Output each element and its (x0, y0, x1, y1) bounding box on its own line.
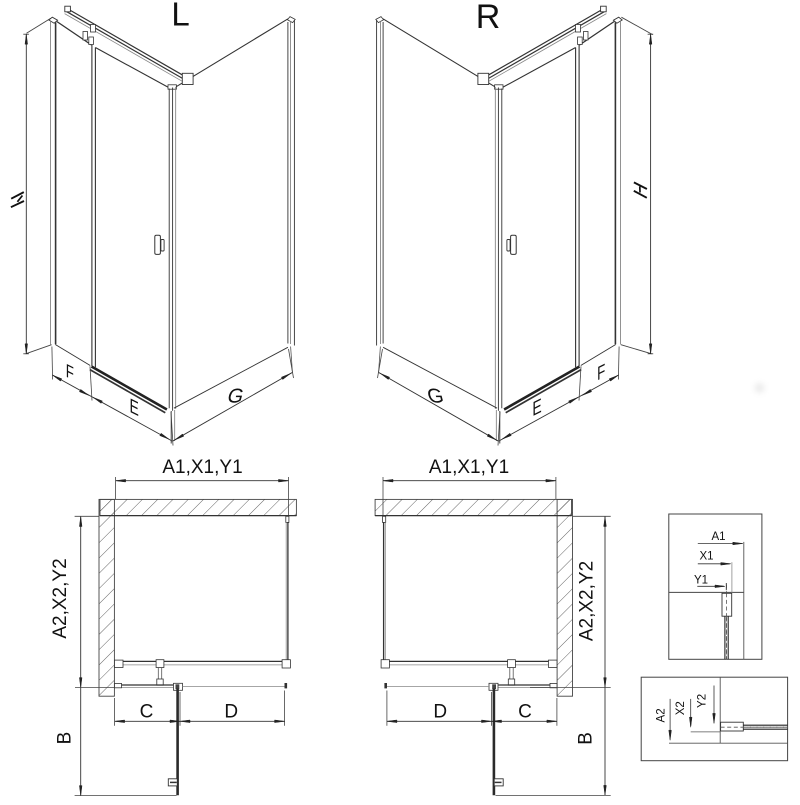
svg-text:Y1: Y1 (694, 575, 708, 587)
svg-text:C: C (518, 702, 532, 723)
svg-text:L: L (171, 0, 189, 33)
svg-text:A2,X2,Y2: A2,X2,Y2 (576, 561, 597, 641)
svg-text:R: R (476, 0, 501, 36)
svg-text:A2: A2 (655, 708, 667, 722)
svg-text:D: D (224, 702, 238, 723)
svg-text:B: B (576, 732, 597, 745)
svg-text:A1: A1 (711, 531, 725, 543)
svg-text:D: D (433, 702, 447, 723)
svg-text:F: F (66, 360, 74, 385)
svg-text:A1,X1,Y1: A1,X1,Y1 (429, 457, 509, 478)
svg-text:C: C (140, 702, 154, 723)
svg-text:X2: X2 (675, 701, 687, 715)
svg-text:A1,X1,Y1: A1,X1,Y1 (162, 457, 242, 478)
svg-text:E: E (532, 394, 541, 421)
svg-text:A2,X2,Y2: A2,X2,Y2 (50, 558, 71, 638)
svg-text:X1: X1 (699, 550, 713, 562)
svg-text:E: E (130, 394, 139, 421)
svg-text:Y2: Y2 (696, 694, 708, 708)
svg-text:B: B (55, 732, 76, 745)
svg-text:F: F (597, 360, 605, 385)
